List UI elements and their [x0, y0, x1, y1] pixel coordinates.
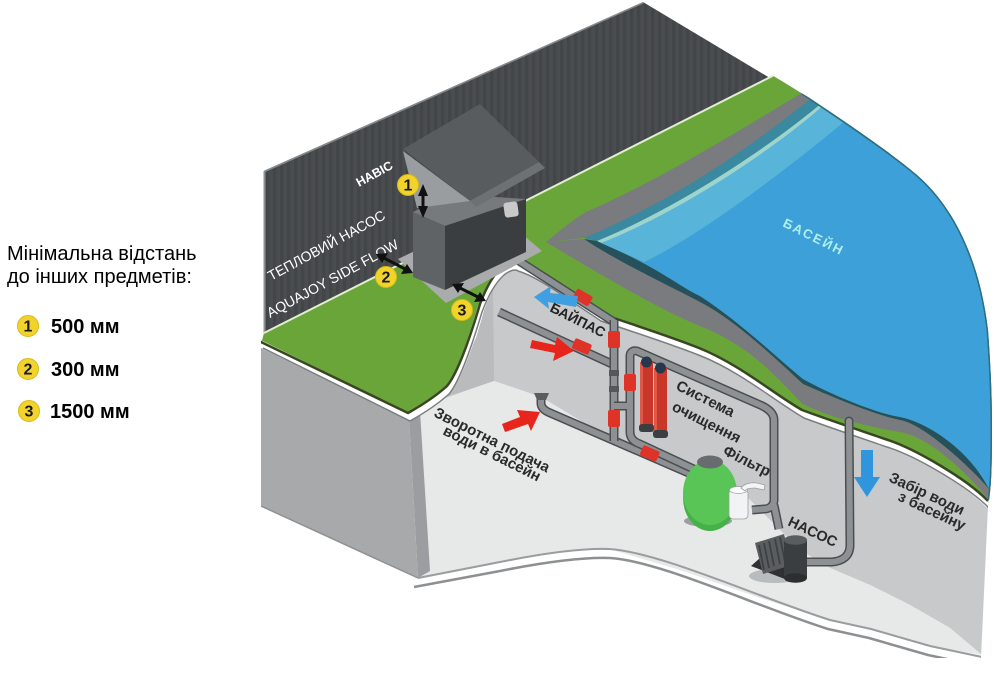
svg-text:500 мм: 500 мм — [51, 316, 120, 338]
svg-text:2: 2 — [382, 270, 391, 287]
svg-text:1: 1 — [404, 178, 413, 195]
svg-text:300 мм: 300 мм — [51, 359, 120, 381]
svg-text:1500 мм: 1500 мм — [50, 401, 130, 423]
svg-text:до інших предметів:: до інших предметів: — [7, 266, 192, 288]
svg-text:1: 1 — [24, 319, 33, 336]
svg-text:2: 2 — [24, 362, 33, 379]
svg-text:3: 3 — [458, 303, 467, 320]
svg-text:3: 3 — [25, 404, 34, 421]
svg-text:Мінімальна відстань: Мінімальна відстань — [7, 243, 197, 265]
